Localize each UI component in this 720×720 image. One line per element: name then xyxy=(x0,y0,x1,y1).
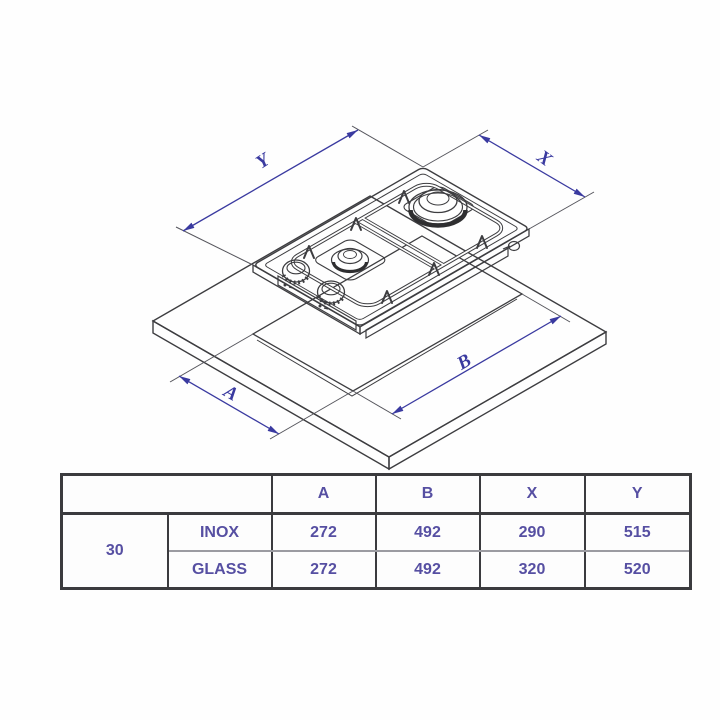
gas-inlet-stub xyxy=(509,242,520,251)
dimension-a: A xyxy=(170,334,353,439)
extension-line xyxy=(353,391,401,419)
value-inox-a: 272 xyxy=(272,514,376,552)
size-cell: 30 xyxy=(62,514,168,589)
knob-indicator-dot xyxy=(284,284,287,287)
spec-row-inox: 30 INOX 272 492 290 515 xyxy=(62,514,691,552)
dimension-label-b: B xyxy=(453,350,475,375)
extension-line xyxy=(352,126,423,167)
dimension-arrow-b xyxy=(392,316,561,414)
value-inox-x: 290 xyxy=(480,514,585,552)
finish-cell-inox: INOX xyxy=(168,514,272,552)
hob-casing-left xyxy=(278,276,356,330)
hob xyxy=(253,167,530,338)
extension-line xyxy=(529,192,594,229)
burner-base-plate-small xyxy=(312,238,388,282)
extension-line xyxy=(423,130,488,167)
value-inox-y: 515 xyxy=(585,514,691,552)
dimension-label-y: Y xyxy=(252,148,275,173)
value-glass-b: 492 xyxy=(376,551,480,589)
value-glass-y: 520 xyxy=(585,551,691,589)
knob-indicator-dot xyxy=(319,305,322,308)
dimension-arrow-x xyxy=(479,135,585,197)
spec-table: A B X Y 30 INOX 272 492 290 515 GLASS 27… xyxy=(60,473,692,590)
page: A B xyxy=(0,0,720,720)
burner-small xyxy=(332,249,369,272)
value-glass-x: 320 xyxy=(480,551,585,589)
header-empty-cell xyxy=(62,475,272,514)
extension-line xyxy=(176,227,253,265)
burner-large xyxy=(409,190,467,226)
cutout-inner-wall-edge xyxy=(257,299,517,396)
finish-cell-glass: GLASS xyxy=(168,551,272,589)
value-inox-b: 492 xyxy=(376,514,480,552)
extension-line xyxy=(270,391,353,439)
col-header-b: B xyxy=(376,475,480,514)
value-glass-a: 272 xyxy=(272,551,376,589)
col-header-x: X xyxy=(480,475,585,514)
extension-line xyxy=(170,334,253,382)
dimension-x: X xyxy=(423,130,594,229)
installation-diagram: A B xyxy=(0,0,720,472)
dimension-arrow-y xyxy=(183,130,358,231)
col-header-y: Y xyxy=(585,475,691,514)
pan-support-grate xyxy=(286,181,508,309)
spec-table-header-row: A B X Y xyxy=(62,475,691,514)
col-header-a: A xyxy=(272,475,376,514)
